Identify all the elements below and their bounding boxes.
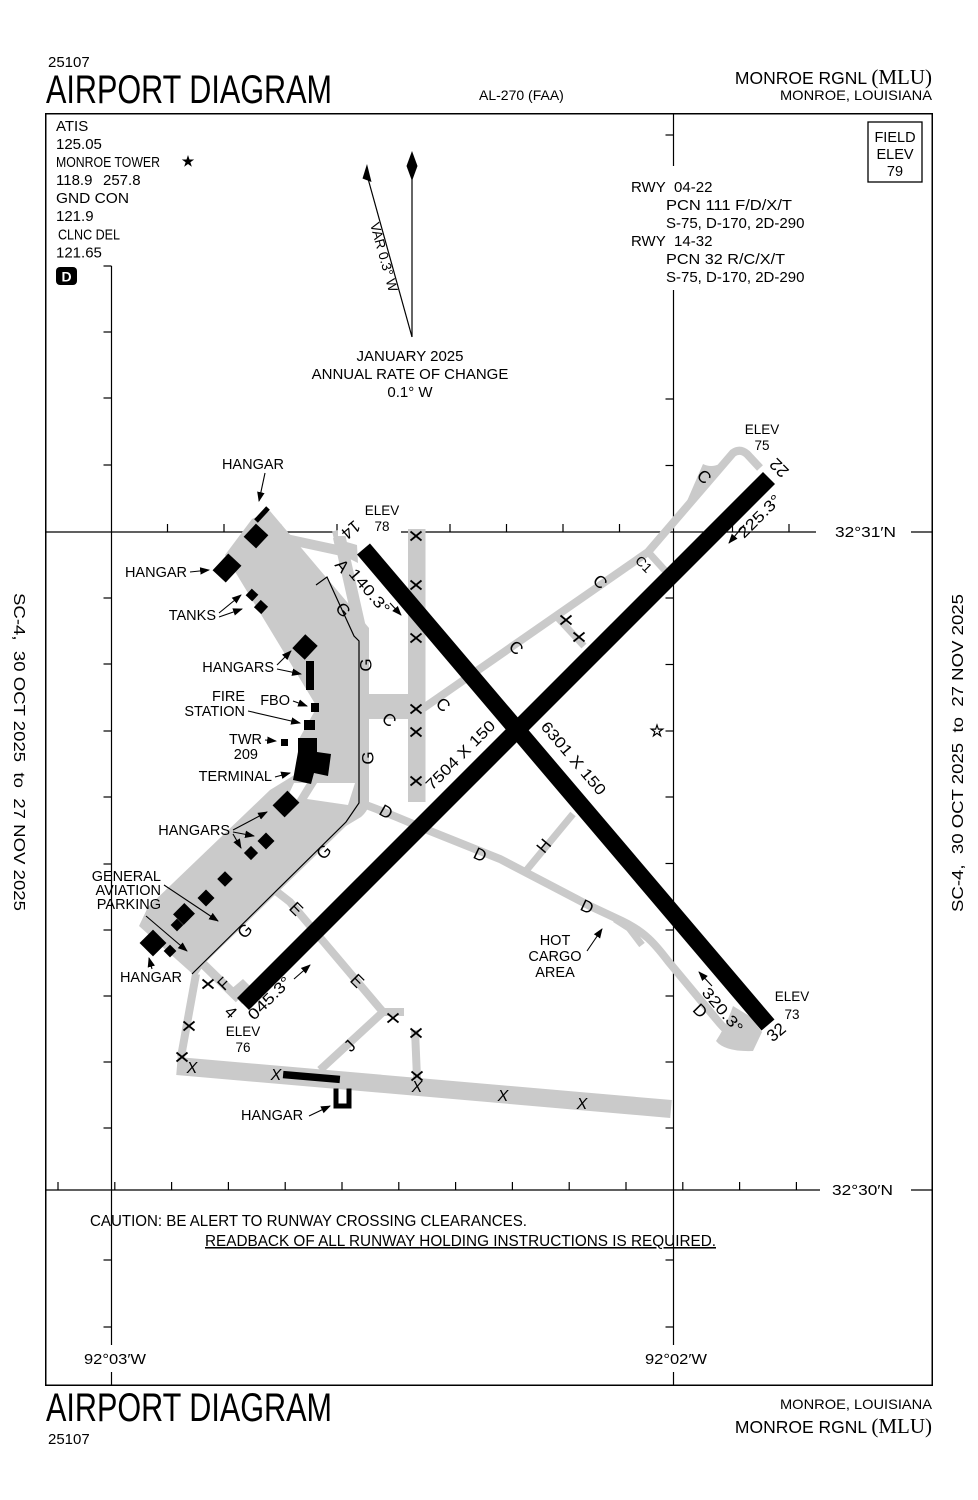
svg-text:257.8: 257.8 xyxy=(103,172,141,189)
svg-text:TWR: TWR xyxy=(229,732,262,748)
svg-text:121.65: 121.65 xyxy=(56,245,102,262)
svg-text:MONROE, LOUISIANA: MONROE, LOUISIANA xyxy=(780,1396,933,1412)
svg-text:X: X xyxy=(497,1088,510,1105)
svg-text:32°30′N: 32°30′N xyxy=(832,1182,893,1199)
svg-text:75: 75 xyxy=(754,438,769,453)
svg-text:0.1° W: 0.1° W xyxy=(387,384,433,401)
svg-text:RWY 14-32: RWY 14-32 xyxy=(631,233,712,250)
svg-text:32°31′N: 32°31′N xyxy=(835,524,896,541)
svg-text:AL-270 (FAA): AL-270 (FAA) xyxy=(479,87,564,103)
svg-text:HANGAR: HANGAR xyxy=(241,1108,303,1124)
svg-text:TANKS: TANKS xyxy=(169,608,216,624)
svg-text:ELEV: ELEV xyxy=(745,422,780,437)
svg-text:HANGAR: HANGAR xyxy=(125,565,187,581)
svg-text:ELEV: ELEV xyxy=(775,989,810,1004)
svg-text:121.9: 121.9 xyxy=(56,208,94,225)
svg-text:RWY 04-22: RWY 04-22 xyxy=(631,179,712,196)
svg-text:209: 209 xyxy=(234,747,258,763)
svg-text:ELEV: ELEV xyxy=(365,503,400,518)
svg-text:JANUARY 2025: JANUARY 2025 xyxy=(356,348,463,365)
svg-text:HANGARS: HANGARS xyxy=(202,660,274,676)
svg-text:D: D xyxy=(61,269,71,285)
svg-text:MONROE RGNL (MLU): MONROE RGNL (MLU) xyxy=(735,1414,932,1438)
svg-text:MONROE TOWER: MONROE TOWER xyxy=(56,154,160,171)
svg-text:SC-4, 30 OCT 2025 to 27 NOV: SC-4, 30 OCT 2025 to 27 NOV 2025 xyxy=(10,593,27,911)
svg-text:READBACK OF ALL RUNWAY HOLDING: READBACK OF ALL RUNWAY HOLDING INSTRUCTI… xyxy=(205,1233,716,1250)
svg-text:HANGAR: HANGAR xyxy=(120,970,182,986)
svg-text:73: 73 xyxy=(784,1007,799,1022)
svg-text:MONROE, LOUISIANA: MONROE, LOUISIANA xyxy=(780,87,933,103)
svg-text:CAUTION: BE ALERT TO RUNWAY CR: CAUTION: BE ALERT TO RUNWAY CROSSING CLE… xyxy=(90,1213,527,1230)
svg-text:FIELD: FIELD xyxy=(874,130,915,146)
svg-text:118.9: 118.9 xyxy=(56,172,92,189)
svg-text:PARKING: PARKING xyxy=(97,897,161,913)
svg-text:92°02′W: 92°02′W xyxy=(645,1351,708,1368)
svg-text:SC-4, 30 OCT 2025 to 27 NOV: SC-4, 30 OCT 2025 to 27 NOV 2025 xyxy=(950,594,967,912)
svg-text:ANNUAL RATE OF CHANGE: ANNUAL RATE OF CHANGE xyxy=(312,366,509,383)
svg-text:MONROE RGNL (MLU): MONROE RGNL (MLU) xyxy=(735,65,932,89)
svg-text:G: G xyxy=(357,658,376,671)
svg-text:X: X xyxy=(411,1079,424,1096)
svg-text:X: X xyxy=(576,1096,589,1113)
svg-text:X: X xyxy=(270,1067,283,1084)
svg-text:HOT: HOT xyxy=(540,933,571,949)
svg-text:PCN 111 F/D/X/T: PCN 111 F/D/X/T xyxy=(666,197,792,214)
svg-text:76: 76 xyxy=(235,1040,250,1055)
svg-text:79: 79 xyxy=(887,164,903,180)
svg-text:FIRE: FIRE xyxy=(212,689,245,705)
svg-text:HANGAR: HANGAR xyxy=(222,457,284,473)
svg-text:HANGARS: HANGARS xyxy=(158,823,230,839)
svg-text:PCN 32 R/C/X/T: PCN 32 R/C/X/T xyxy=(666,251,785,268)
svg-text:S-75, D-170, 2D-290: S-75, D-170, 2D-290 xyxy=(666,215,804,232)
svg-text:25107: 25107 xyxy=(48,1431,90,1448)
svg-text:AIRPORT DIAGRAM: AIRPORT DIAGRAM xyxy=(46,1386,332,1430)
svg-text:CARGO: CARGO xyxy=(528,949,581,965)
svg-text:STATION: STATION xyxy=(184,704,245,720)
svg-text:AREA: AREA xyxy=(535,965,575,981)
svg-text:CLNC DEL: CLNC DEL xyxy=(58,227,120,244)
svg-text:78: 78 xyxy=(374,519,389,534)
svg-text:FBO: FBO xyxy=(260,693,290,709)
svg-text:125.05: 125.05 xyxy=(56,136,102,153)
svg-text:AIRPORT DIAGRAM: AIRPORT DIAGRAM xyxy=(46,68,332,112)
svg-text:G: G xyxy=(359,751,378,764)
svg-text:ATIS: ATIS xyxy=(56,118,88,135)
svg-text:S-75, D-170, 2D-290: S-75, D-170, 2D-290 xyxy=(666,269,804,286)
svg-text:X: X xyxy=(186,1060,199,1077)
svg-text:TERMINAL: TERMINAL xyxy=(199,769,272,785)
svg-text:GND CON: GND CON xyxy=(56,190,129,207)
svg-text:ELEV: ELEV xyxy=(226,1024,261,1039)
svg-text:ELEV: ELEV xyxy=(876,147,913,163)
svg-text:92°03′W: 92°03′W xyxy=(84,1351,147,1368)
